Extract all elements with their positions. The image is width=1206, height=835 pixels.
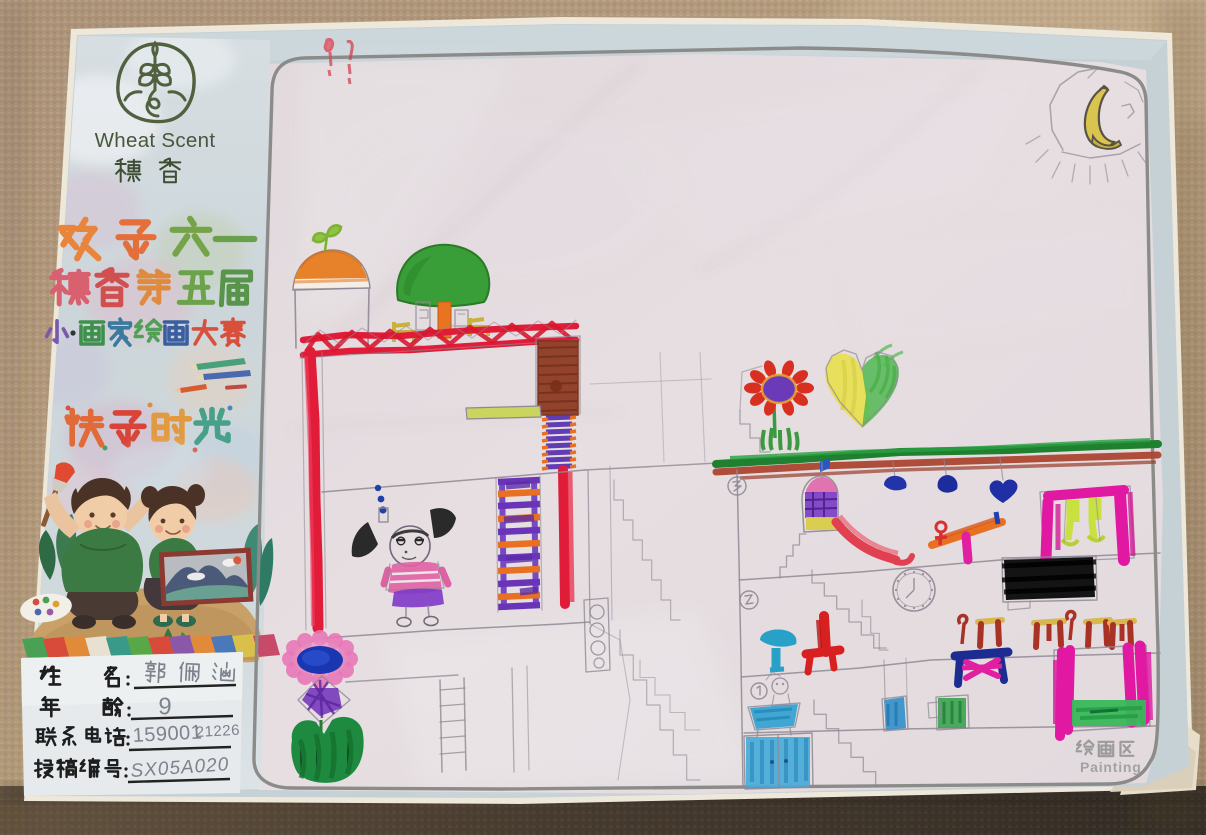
svg-text:Painting: Painting [1080, 759, 1142, 775]
svg-text:21226: 21226 [195, 722, 240, 741]
svg-text:9: 9 [158, 693, 172, 720]
svg-text:159001: 159001 [132, 721, 203, 747]
svg-text:Wheat Scent: Wheat Scent [95, 129, 216, 152]
